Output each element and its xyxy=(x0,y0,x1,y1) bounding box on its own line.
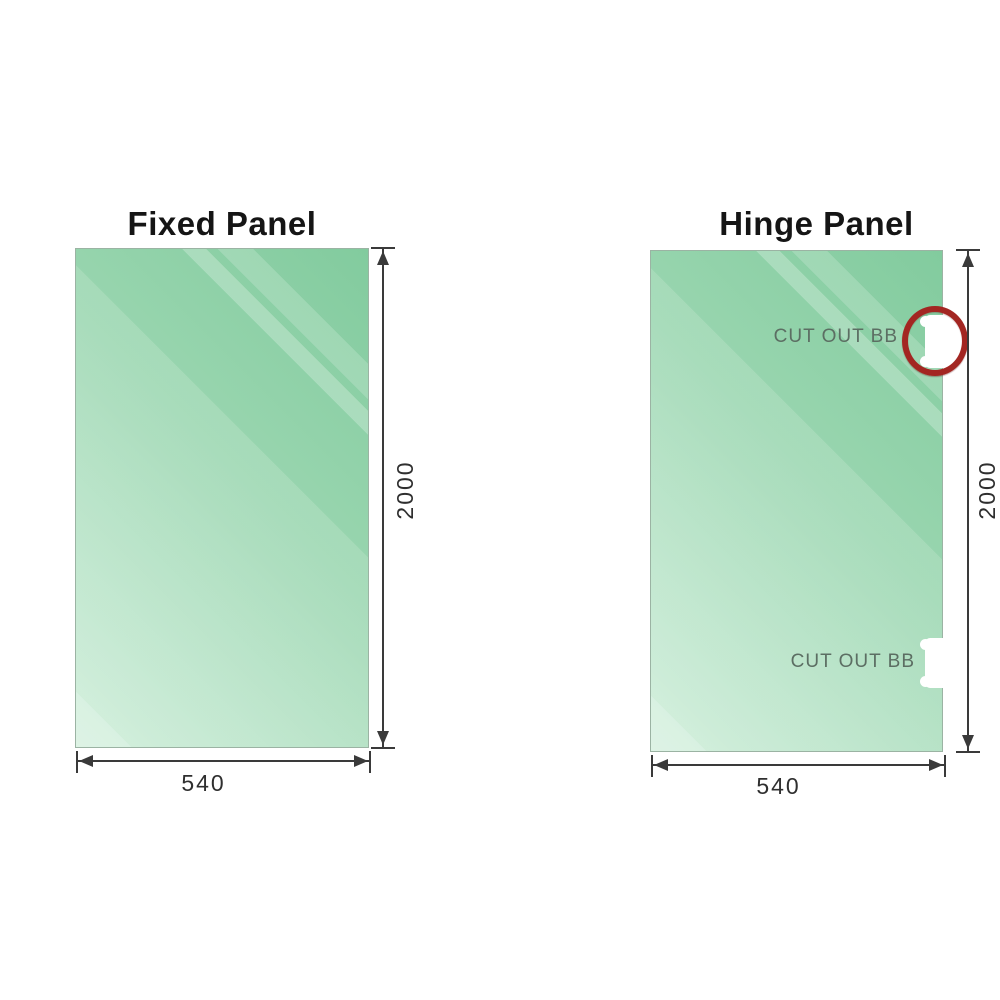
dimension-line xyxy=(382,249,384,747)
cutout-lobe xyxy=(920,676,931,687)
dimension-end-tick xyxy=(369,751,371,773)
cutout-lobe xyxy=(920,639,931,650)
arrow-right-icon xyxy=(354,755,368,767)
arrow-left-icon xyxy=(654,759,668,771)
cutout-label-bottom: CUT OUT BB xyxy=(650,651,915,673)
dimension-line xyxy=(967,251,969,751)
dimension-end-tick xyxy=(371,747,395,749)
dimension-end-tick xyxy=(956,751,980,753)
hinge-panel-title: Hinge Panel xyxy=(670,204,963,244)
dimension-line xyxy=(652,764,945,766)
cutout-label-top: CUT OUT BB xyxy=(650,326,898,348)
fixed-panel-title: Fixed Panel xyxy=(75,204,369,244)
arrow-up-icon xyxy=(962,253,974,267)
shower-panel-diagram: Fixed Panel 2000 540 Hinge Panel CUT OUT… xyxy=(0,0,1000,1000)
hinge-panel-height-label: 2000 xyxy=(973,440,1000,540)
fixed-panel-height-label: 2000 xyxy=(391,440,419,540)
fixed-panel-width-label: 540 xyxy=(56,770,351,797)
arrow-down-icon xyxy=(377,731,389,745)
fixed-panel-glass xyxy=(75,248,369,748)
arrow-right-icon xyxy=(929,759,943,771)
dimension-end-tick xyxy=(944,755,946,777)
hinge-panel-width-label: 540 xyxy=(631,773,926,800)
arrow-down-icon xyxy=(962,735,974,749)
arrow-left-icon xyxy=(79,755,93,767)
dimension-line xyxy=(77,760,370,762)
hinge-cutout-bottom xyxy=(925,638,945,688)
arrow-up-icon xyxy=(377,251,389,265)
